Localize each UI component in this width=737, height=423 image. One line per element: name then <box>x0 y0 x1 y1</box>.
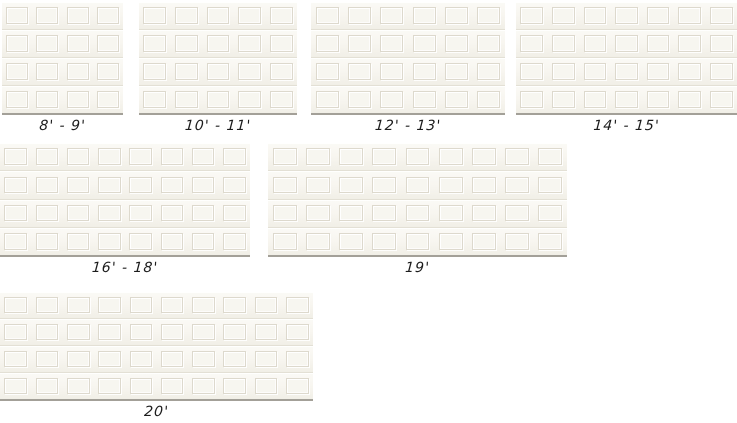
raised-panel <box>273 148 297 164</box>
raised-panel <box>647 63 670 79</box>
raised-panel <box>380 7 403 23</box>
raised-panel <box>439 205 463 221</box>
garage-door-image-8-9[interactable] <box>2 2 123 115</box>
raised-panel <box>316 91 339 107</box>
raised-panel <box>413 63 436 79</box>
raised-panel <box>477 35 500 51</box>
raised-panel <box>348 7 371 23</box>
raised-panel <box>270 63 293 79</box>
raised-panel <box>445 7 468 23</box>
raised-panel <box>223 297 246 313</box>
raised-panel <box>130 324 153 340</box>
raised-panel <box>505 148 529 164</box>
raised-panel <box>413 35 436 51</box>
raised-panel <box>286 378 309 394</box>
raised-panel <box>372 148 396 164</box>
door-section <box>311 86 505 113</box>
raised-panel <box>98 177 121 193</box>
raised-panel <box>207 7 230 23</box>
door-section <box>139 86 297 113</box>
raised-panel <box>286 351 309 367</box>
raised-panel <box>161 233 184 249</box>
raised-panel <box>4 233 27 249</box>
raised-panel <box>223 205 246 221</box>
raised-panel <box>192 205 215 221</box>
raised-panel <box>348 35 371 51</box>
raised-panel <box>6 7 28 23</box>
raised-panel <box>223 233 246 249</box>
raised-panel <box>439 233 463 249</box>
garage-door-image-20[interactable] <box>0 292 313 401</box>
raised-panel <box>129 233 152 249</box>
door-section <box>516 58 737 86</box>
raised-panel <box>161 324 184 340</box>
raised-panel <box>273 177 297 193</box>
raised-panel <box>175 35 198 51</box>
raised-panel <box>161 177 184 193</box>
raised-panel <box>98 233 121 249</box>
raised-panel <box>223 351 246 367</box>
raised-panel <box>678 91 701 107</box>
raised-panel <box>4 177 27 193</box>
raised-panel <box>439 177 463 193</box>
raised-panel <box>97 91 119 107</box>
raised-panel <box>67 177 90 193</box>
door-section <box>0 346 313 373</box>
raised-panel <box>538 205 562 221</box>
raised-panel <box>255 297 278 313</box>
raised-panel <box>161 148 184 164</box>
door-option-16-18: 16' - 18' <box>0 143 250 276</box>
raised-panel <box>207 91 230 107</box>
raised-panel <box>538 148 562 164</box>
raised-panel <box>98 297 121 313</box>
raised-panel <box>98 351 121 367</box>
raised-panel <box>207 63 230 79</box>
raised-panel <box>520 7 543 23</box>
raised-panel <box>207 35 230 51</box>
raised-panel <box>505 205 529 221</box>
raised-panel <box>6 91 28 107</box>
raised-panel <box>223 177 246 193</box>
raised-panel <box>67 91 89 107</box>
garage-door-image-14-15[interactable] <box>516 2 737 115</box>
door-section <box>516 2 737 30</box>
door-section <box>0 143 250 171</box>
door-option-14-15: 14' - 15' <box>516 2 737 134</box>
raised-panel <box>339 177 363 193</box>
raised-panel <box>36 35 58 51</box>
raised-panel <box>223 148 246 164</box>
raised-panel <box>270 91 293 107</box>
door-section <box>268 143 567 171</box>
raised-panel <box>520 63 543 79</box>
raised-panel <box>306 148 330 164</box>
raised-panel <box>584 91 607 107</box>
raised-panel <box>445 63 468 79</box>
door-section <box>0 200 250 228</box>
raised-panel <box>238 7 261 23</box>
raised-panel <box>678 7 701 23</box>
raised-panel <box>615 7 638 23</box>
raised-panel <box>67 35 89 51</box>
raised-panel <box>270 7 293 23</box>
raised-panel <box>36 7 58 23</box>
raised-panel <box>67 148 90 164</box>
raised-panel <box>615 35 638 51</box>
raised-panel <box>192 378 215 394</box>
raised-panel <box>538 233 562 249</box>
door-size-label: 12' - 13' <box>310 118 505 134</box>
door-section <box>268 200 567 228</box>
door-option-10-11: 10' - 11' <box>139 2 297 134</box>
raised-panel <box>270 35 293 51</box>
door-section <box>139 2 297 30</box>
raised-panel <box>306 205 330 221</box>
door-size-label: 20' <box>0 404 314 420</box>
garage-door-image-19[interactable] <box>268 143 567 257</box>
raised-panel <box>130 297 153 313</box>
raised-panel <box>36 351 59 367</box>
raised-panel <box>286 324 309 340</box>
raised-panel <box>316 35 339 51</box>
door-section <box>516 86 737 113</box>
raised-panel <box>445 91 468 107</box>
raised-panel <box>4 351 27 367</box>
raised-panel <box>552 63 575 79</box>
raised-panel <box>552 7 575 23</box>
raised-panel <box>406 177 430 193</box>
raised-panel <box>615 91 638 107</box>
door-size-label: 8' - 9' <box>1 118 123 134</box>
door-section <box>0 373 313 399</box>
raised-panel <box>67 233 90 249</box>
raised-panel <box>520 35 543 51</box>
raised-panel <box>472 177 496 193</box>
raised-panel <box>36 148 59 164</box>
raised-panel <box>161 205 184 221</box>
door-section <box>2 30 123 58</box>
raised-panel <box>98 378 121 394</box>
raised-panel <box>306 177 330 193</box>
raised-panel <box>255 351 278 367</box>
raised-panel <box>36 233 59 249</box>
raised-panel <box>4 148 27 164</box>
door-section <box>2 58 123 86</box>
door-option-19: 19' <box>268 143 567 276</box>
raised-panel <box>98 205 121 221</box>
door-section <box>311 2 505 30</box>
raised-panel <box>584 7 607 23</box>
raised-panel <box>192 297 215 313</box>
raised-panel <box>584 35 607 51</box>
raised-panel <box>67 297 90 313</box>
door-section <box>0 319 313 346</box>
raised-panel <box>67 205 90 221</box>
raised-panel <box>505 233 529 249</box>
door-option-20: 20' <box>0 292 313 420</box>
raised-panel <box>406 233 430 249</box>
raised-panel <box>339 233 363 249</box>
door-option-8-9: 8' - 9' <box>2 2 123 134</box>
raised-panel <box>161 351 184 367</box>
raised-panel <box>372 177 396 193</box>
raised-panel <box>372 233 396 249</box>
raised-panel <box>4 324 27 340</box>
raised-panel <box>192 233 215 249</box>
door-section <box>311 58 505 86</box>
raised-panel <box>505 177 529 193</box>
door-section <box>0 171 250 199</box>
raised-panel <box>6 35 28 51</box>
raised-panel <box>273 233 297 249</box>
raised-panel <box>647 35 670 51</box>
door-section <box>2 2 123 30</box>
raised-panel <box>192 177 215 193</box>
raised-panel <box>477 7 500 23</box>
raised-panel <box>710 63 733 79</box>
raised-panel <box>4 205 27 221</box>
raised-panel <box>4 297 27 313</box>
raised-panel <box>615 63 638 79</box>
raised-panel <box>36 297 59 313</box>
raised-panel <box>36 63 58 79</box>
door-size-label: 14' - 15' <box>515 118 737 134</box>
raised-panel <box>36 205 59 221</box>
raised-panel <box>552 35 575 51</box>
raised-panel <box>380 35 403 51</box>
raised-panel <box>36 177 59 193</box>
raised-panel <box>406 205 430 221</box>
raised-panel <box>238 91 261 107</box>
raised-panel <box>67 378 90 394</box>
raised-panel <box>413 7 436 23</box>
raised-panel <box>584 63 607 79</box>
door-size-label: 19' <box>267 260 567 276</box>
raised-panel <box>143 7 166 23</box>
raised-panel <box>255 324 278 340</box>
raised-panel <box>306 233 330 249</box>
door-section <box>0 228 250 255</box>
raised-panel <box>255 378 278 394</box>
garage-door-image-12-13[interactable] <box>311 2 505 115</box>
raised-panel <box>678 63 701 79</box>
raised-panel <box>380 91 403 107</box>
door-section <box>139 58 297 86</box>
raised-panel <box>678 35 701 51</box>
raised-panel <box>161 378 184 394</box>
raised-panel <box>192 324 215 340</box>
raised-panel <box>238 63 261 79</box>
raised-panel <box>223 324 246 340</box>
raised-panel <box>710 91 733 107</box>
raised-panel <box>67 7 89 23</box>
raised-panel <box>129 177 152 193</box>
raised-panel <box>175 7 198 23</box>
raised-panel <box>339 205 363 221</box>
raised-panel <box>129 205 152 221</box>
raised-panel <box>348 63 371 79</box>
door-section <box>0 292 313 319</box>
raised-panel <box>477 91 500 107</box>
door-section <box>268 228 567 255</box>
door-section <box>311 30 505 58</box>
raised-panel <box>175 91 198 107</box>
raised-panel <box>129 148 152 164</box>
raised-panel <box>98 148 121 164</box>
raised-panel <box>161 297 184 313</box>
door-width-options: 8' - 9'10' - 11'12' - 13'14' - 15'16' - … <box>0 0 737 423</box>
raised-panel <box>445 35 468 51</box>
raised-panel <box>143 35 166 51</box>
raised-panel <box>36 324 59 340</box>
raised-panel <box>67 351 90 367</box>
raised-panel <box>238 35 261 51</box>
door-size-label: 16' - 18' <box>0 260 251 276</box>
garage-door-image-16-18[interactable] <box>0 143 250 257</box>
raised-panel <box>339 148 363 164</box>
raised-panel <box>477 63 500 79</box>
raised-panel <box>406 148 430 164</box>
raised-panel <box>372 205 396 221</box>
raised-panel <box>36 378 59 394</box>
raised-panel <box>130 351 153 367</box>
raised-panel <box>175 63 198 79</box>
raised-panel <box>316 7 339 23</box>
raised-panel <box>97 35 119 51</box>
raised-panel <box>413 91 436 107</box>
raised-panel <box>647 7 670 23</box>
raised-panel <box>286 297 309 313</box>
raised-panel <box>710 7 733 23</box>
door-section <box>2 86 123 113</box>
raised-panel <box>4 378 27 394</box>
raised-panel <box>223 378 246 394</box>
door-section <box>516 30 737 58</box>
raised-panel <box>552 91 575 107</box>
raised-panel <box>472 233 496 249</box>
raised-panel <box>98 324 121 340</box>
raised-panel <box>439 148 463 164</box>
raised-panel <box>538 177 562 193</box>
raised-panel <box>710 35 733 51</box>
raised-panel <box>472 205 496 221</box>
raised-panel <box>647 91 670 107</box>
raised-panel <box>316 63 339 79</box>
door-option-12-13: 12' - 13' <box>311 2 505 134</box>
raised-panel <box>97 63 119 79</box>
raised-panel <box>97 7 119 23</box>
raised-panel <box>192 148 215 164</box>
door-section <box>139 30 297 58</box>
raised-panel <box>67 324 90 340</box>
raised-panel <box>143 91 166 107</box>
raised-panel <box>67 63 89 79</box>
raised-panel <box>192 351 215 367</box>
raised-panel <box>143 63 166 79</box>
door-size-label: 10' - 11' <box>138 118 297 134</box>
raised-panel <box>36 91 58 107</box>
raised-panel <box>520 91 543 107</box>
raised-panel <box>130 378 153 394</box>
raised-panel <box>348 91 371 107</box>
raised-panel <box>380 63 403 79</box>
raised-panel <box>273 205 297 221</box>
door-section <box>268 171 567 199</box>
raised-panel <box>6 63 28 79</box>
garage-door-image-10-11[interactable] <box>139 2 297 115</box>
raised-panel <box>472 148 496 164</box>
